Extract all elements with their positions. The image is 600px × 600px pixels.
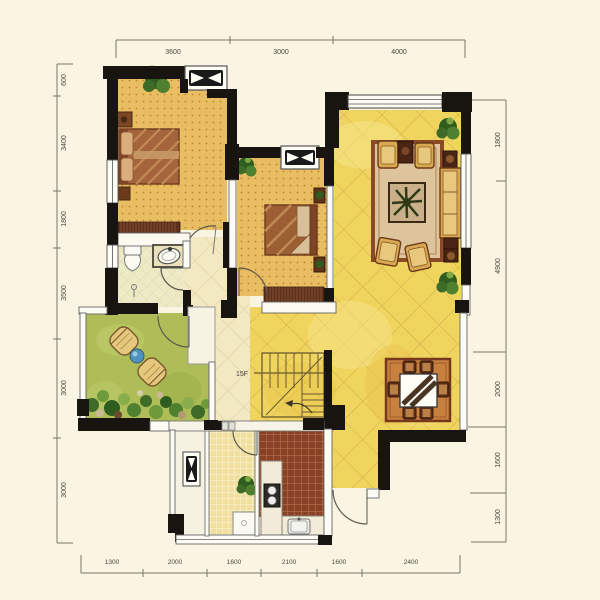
svg-text:3600: 3600 (165, 49, 181, 56)
svg-text:3000: 3000 (273, 49, 289, 56)
svg-text:2100: 2100 (282, 559, 297, 566)
svg-text:1300: 1300 (105, 559, 120, 566)
svg-text:3500: 3500 (61, 285, 68, 301)
svg-text:15F: 15F (236, 371, 248, 378)
svg-text:3000: 3000 (61, 380, 68, 396)
svg-text:4000: 4000 (391, 49, 407, 56)
svg-text:1300: 1300 (495, 509, 502, 525)
svg-text:1800: 1800 (495, 132, 502, 148)
svg-text:1600: 1600 (332, 559, 347, 566)
svg-text:1600: 1600 (495, 452, 502, 468)
svg-text:2000: 2000 (495, 381, 502, 397)
svg-text:2000: 2000 (168, 559, 183, 566)
svg-text:4900: 4900 (495, 258, 502, 274)
svg-text:3000: 3000 (61, 482, 68, 498)
svg-text:3400: 3400 (61, 135, 68, 151)
svg-text:2400: 2400 (404, 559, 419, 566)
svg-text:1800: 1800 (61, 211, 68, 227)
svg-text:600: 600 (61, 74, 68, 86)
svg-text:1600: 1600 (227, 559, 242, 566)
